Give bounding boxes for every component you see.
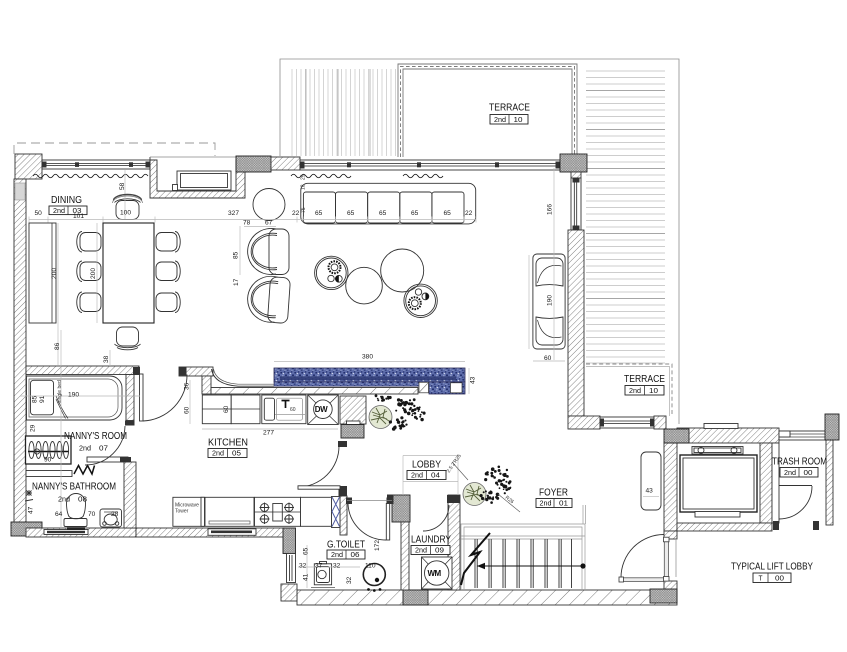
svg-text:T: T xyxy=(759,573,763,582)
svg-text:G.TOILET: G.TOILET xyxy=(327,540,366,551)
svg-text:32: 32 xyxy=(299,563,307,570)
svg-text:DW: DW xyxy=(315,405,328,414)
svg-text:09: 09 xyxy=(435,546,444,555)
svg-text:25: 25 xyxy=(301,174,307,180)
svg-text:75: 75 xyxy=(301,207,307,213)
svg-text:10: 10 xyxy=(514,115,523,124)
svg-text:166: 166 xyxy=(547,204,554,215)
svg-text:08: 08 xyxy=(78,495,87,504)
svg-text:TYPICAL LIFT LOBBY: TYPICAL LIFT LOBBY xyxy=(731,562,813,573)
svg-text:41: 41 xyxy=(303,573,310,581)
svg-text:200: 200 xyxy=(51,268,58,279)
svg-text:FOYER: FOYER xyxy=(539,488,568,499)
svg-text:277: 277 xyxy=(263,430,274,437)
svg-text:50: 50 xyxy=(35,210,43,217)
svg-text:85: 85 xyxy=(32,395,39,403)
svg-text:78: 78 xyxy=(243,220,251,227)
svg-text:380: 380 xyxy=(362,354,373,361)
svg-text:22: 22 xyxy=(465,210,473,217)
svg-text:58: 58 xyxy=(119,182,126,190)
svg-text:17: 17 xyxy=(233,278,240,286)
svg-text:2nd: 2nd xyxy=(784,468,796,477)
svg-text:29: 29 xyxy=(30,424,37,432)
svg-text:DINING: DINING xyxy=(51,195,82,206)
svg-text:32: 32 xyxy=(333,563,341,570)
svg-text:37: 37 xyxy=(315,563,323,570)
svg-text:18: 18 xyxy=(301,184,307,190)
svg-text:01: 01 xyxy=(559,499,568,508)
svg-text:65: 65 xyxy=(411,210,419,217)
svg-text:04: 04 xyxy=(431,471,440,480)
svg-text:101: 101 xyxy=(73,213,84,220)
svg-text:100: 100 xyxy=(120,210,131,217)
svg-text:2nd: 2nd xyxy=(540,499,552,508)
svg-text:85: 85 xyxy=(233,251,240,259)
svg-text:65: 65 xyxy=(444,210,452,217)
svg-text:86: 86 xyxy=(54,342,61,350)
svg-text:2nd: 2nd xyxy=(415,546,427,555)
svg-text:190: 190 xyxy=(547,295,554,306)
svg-text:190: 190 xyxy=(68,392,79,399)
svg-text:LAUNDRY: LAUNDRY xyxy=(411,535,451,546)
svg-text:TERRACE: TERRACE xyxy=(489,103,530,114)
svg-text:60: 60 xyxy=(290,407,296,413)
svg-text:22: 22 xyxy=(292,210,300,217)
svg-text:28: 28 xyxy=(111,511,119,518)
svg-text:2nd: 2nd xyxy=(629,386,641,395)
svg-text:110: 110 xyxy=(365,563,376,570)
svg-text:2nd: 2nd xyxy=(411,471,423,480)
svg-text:38: 38 xyxy=(103,355,110,363)
svg-text:00: 00 xyxy=(804,468,813,477)
svg-text:47: 47 xyxy=(28,506,35,514)
svg-text:67: 67 xyxy=(265,220,273,227)
svg-text:TERRACE: TERRACE xyxy=(624,374,665,385)
svg-text:Tower: Tower xyxy=(175,509,189,515)
svg-text:2nd: 2nd xyxy=(331,550,343,559)
svg-text:65: 65 xyxy=(303,547,310,555)
svg-text:327: 327 xyxy=(228,210,239,217)
svg-text:91: 91 xyxy=(39,395,46,403)
svg-text:200: 200 xyxy=(90,268,97,279)
svg-text:65: 65 xyxy=(315,210,323,217)
svg-text:NANNY'S ROOM: NANNY'S ROOM xyxy=(64,431,127,442)
svg-text:10: 10 xyxy=(649,386,658,395)
svg-text:2nd: 2nd xyxy=(494,115,506,124)
svg-text:60: 60 xyxy=(544,355,552,362)
svg-text:172: 172 xyxy=(374,540,381,551)
svg-text:43: 43 xyxy=(470,376,477,384)
svg-text:36: 36 xyxy=(184,382,191,390)
svg-text:05: 05 xyxy=(232,449,241,458)
svg-text:06: 06 xyxy=(351,550,360,559)
svg-text:KITCHEN: KITCHEN xyxy=(208,438,248,449)
svg-text:single bed: single bed xyxy=(57,380,63,403)
svg-text:07: 07 xyxy=(99,444,108,453)
svg-text:60: 60 xyxy=(184,406,191,414)
svg-text:65: 65 xyxy=(347,210,355,217)
svg-text:2nd: 2nd xyxy=(79,444,91,453)
svg-text:60: 60 xyxy=(223,405,230,413)
svg-text:2nd: 2nd xyxy=(212,449,224,458)
svg-text:00: 00 xyxy=(775,573,784,582)
svg-text:65: 65 xyxy=(379,210,387,217)
svg-text:TRASH ROOM: TRASH ROOM xyxy=(772,457,827,468)
svg-text:2nd: 2nd xyxy=(53,206,65,215)
svg-text:NANNY'S BATHROOM: NANNY'S BATHROOM xyxy=(32,482,116,493)
svg-text:64: 64 xyxy=(55,511,63,518)
svg-text:90: 90 xyxy=(44,457,52,464)
svg-text:WM: WM xyxy=(428,569,442,578)
svg-text:32: 32 xyxy=(346,576,353,584)
svg-text:43: 43 xyxy=(646,488,654,495)
svg-text:70: 70 xyxy=(88,511,96,518)
svg-text:LOBBY: LOBBY xyxy=(412,460,441,471)
svg-text:2nd: 2nd xyxy=(58,495,70,504)
